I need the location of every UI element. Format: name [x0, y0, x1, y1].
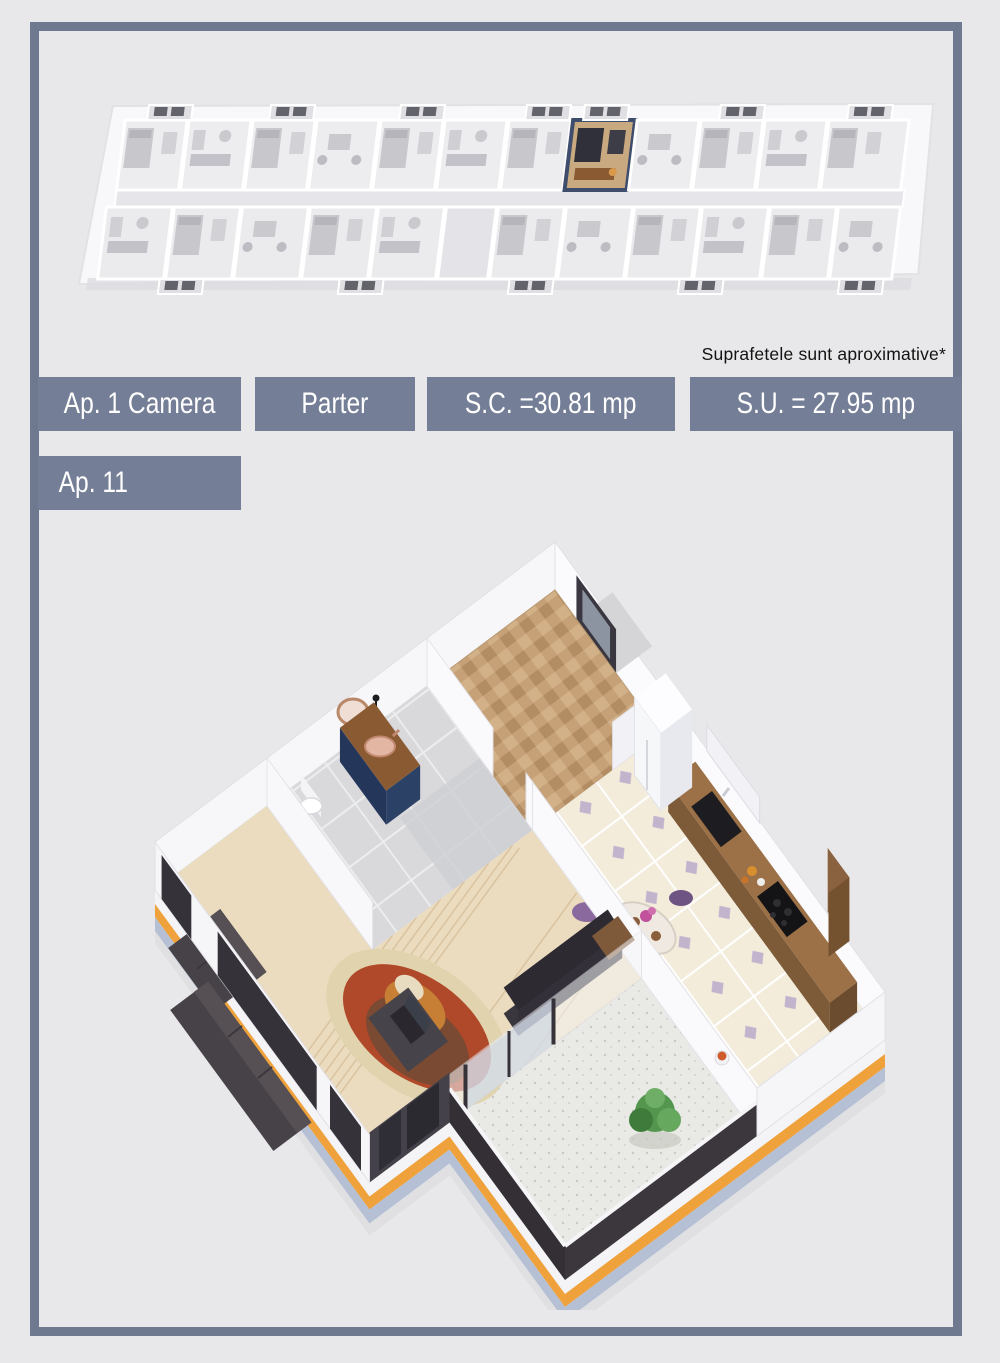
- corridor: [114, 190, 904, 207]
- plate: [651, 931, 661, 941]
- copper-sink: [365, 737, 395, 757]
- building-floor-svg: [40, 48, 960, 333]
- usable-area-text: S.U. = 27.95 mp: [737, 387, 915, 421]
- unit-type-label: Ap. 1 Camera: [38, 377, 241, 431]
- usable-area-label: S.U. = 27.95 mp: [690, 377, 962, 431]
- unit-number-label: Ap. 11: [38, 456, 241, 510]
- disclaimer-note: Suprafetele sunt aproximative*: [702, 344, 946, 365]
- building-mass: [65, 104, 939, 333]
- top-row-units: [117, 120, 910, 190]
- floor-text: Parter: [301, 387, 368, 421]
- highlighted-unit: [565, 120, 636, 190]
- red-bowl: [718, 1052, 727, 1061]
- unit-number-text: Ap. 11: [59, 466, 128, 500]
- bottom-row-units: [83, 207, 900, 333]
- purple-chair: [669, 890, 693, 906]
- tall-cabinet: [828, 848, 850, 957]
- building-floor-plan-render: [40, 48, 960, 333]
- apartment-3d-render: [125, 530, 940, 1310]
- unit-type-text: Ap. 1 Camera: [64, 387, 216, 421]
- built-area-text: S.C. =30.81 mp: [465, 387, 637, 421]
- wall-lamp: [373, 695, 380, 702]
- built-area-label: S.C. =30.81 mp: [427, 377, 675, 431]
- apartment-svg: [125, 530, 940, 1310]
- flyer-page: Suprafetele sunt aproximative* Ap. 1 Cam…: [0, 0, 1000, 1363]
- floor-label: Parter: [255, 377, 415, 431]
